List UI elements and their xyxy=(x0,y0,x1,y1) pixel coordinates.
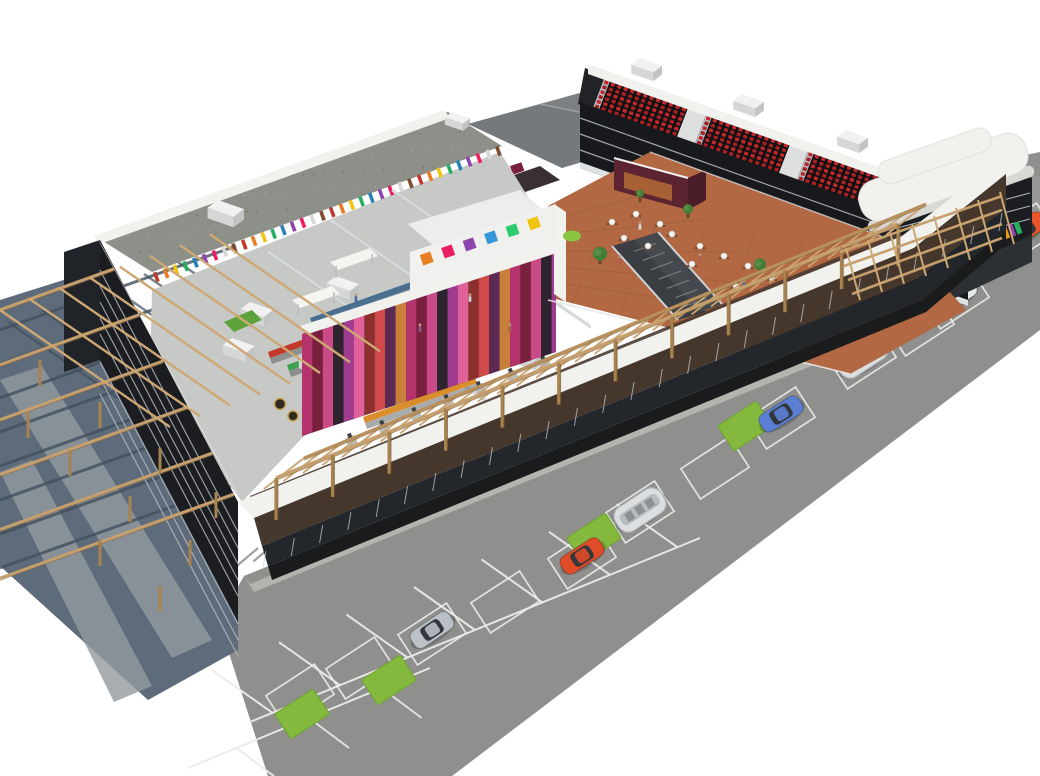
cafe-chair xyxy=(751,267,754,270)
cafe-chair xyxy=(675,235,678,238)
product-stripe xyxy=(358,196,365,207)
gravel-dot xyxy=(198,231,200,233)
display-barrel xyxy=(275,399,286,410)
cafe-table xyxy=(745,263,751,269)
product-stripe xyxy=(378,189,385,200)
product-stripe xyxy=(309,214,316,225)
person-head xyxy=(699,253,702,256)
cafe-chair xyxy=(627,239,630,242)
gravel-dot xyxy=(187,231,189,233)
gravel-dot xyxy=(256,210,258,212)
product-stripe xyxy=(368,192,375,203)
person-head xyxy=(419,323,422,326)
person xyxy=(355,296,358,302)
gravel-dot xyxy=(322,173,324,175)
cafe-table xyxy=(609,219,615,225)
gravel-dot xyxy=(218,229,220,231)
gravel-dot xyxy=(314,190,316,192)
cafe-chair xyxy=(719,257,722,260)
gravel-dot xyxy=(149,251,151,253)
display-barrel xyxy=(288,411,298,421)
mall-render xyxy=(0,0,1040,776)
product-stripe xyxy=(456,160,463,171)
cafe-table xyxy=(633,211,639,217)
gravel-dot xyxy=(433,166,435,168)
product-stripe xyxy=(436,167,443,178)
cafe-table xyxy=(621,235,627,241)
cafe-chair xyxy=(695,265,698,268)
product-stripe xyxy=(270,228,277,239)
cafe-chair xyxy=(687,265,690,268)
gravel-dot xyxy=(391,152,393,154)
gravel-dot xyxy=(383,169,385,171)
product-stripe xyxy=(339,203,346,214)
gravel-dot xyxy=(342,171,344,173)
hvac-unit xyxy=(631,58,662,81)
cafe-chair xyxy=(643,247,646,250)
sw-return-face xyxy=(64,240,100,372)
product-stripe xyxy=(319,210,326,221)
gravel-dot xyxy=(306,207,308,209)
cafe-chair xyxy=(695,247,698,250)
product-stripe xyxy=(241,239,248,250)
gravel-dot xyxy=(266,210,268,212)
gravel-dot xyxy=(411,150,413,152)
hvac-unit xyxy=(733,94,764,117)
cafe-chair xyxy=(615,223,618,226)
gravel-dot xyxy=(302,174,304,176)
gravel-dot xyxy=(362,170,364,172)
person xyxy=(619,258,622,264)
gravel-dot xyxy=(264,193,266,195)
gravel-dot xyxy=(196,214,198,216)
gravel-dot xyxy=(451,148,453,150)
gravel-dot xyxy=(177,232,179,234)
cafe-table xyxy=(697,243,703,249)
product-stripe xyxy=(290,221,297,232)
product-stripe xyxy=(300,218,307,229)
cafe-chair xyxy=(655,225,658,228)
gravel-dot xyxy=(254,194,256,196)
gravel-dot xyxy=(413,167,415,169)
tree-highlight xyxy=(594,249,602,257)
tree-highlight xyxy=(755,260,762,267)
product-stripe xyxy=(397,182,404,193)
gravel-dot xyxy=(147,234,149,236)
gravel-dot xyxy=(169,249,171,251)
gravel-dot xyxy=(246,211,248,213)
person-head xyxy=(355,293,358,296)
gravel-dot xyxy=(292,175,294,177)
gravel-dot xyxy=(179,249,181,251)
gravel-dot xyxy=(127,235,129,237)
person-head xyxy=(469,293,472,296)
gravel-dot xyxy=(419,133,421,135)
gravel-dot xyxy=(354,187,356,189)
gravel-dot xyxy=(374,186,376,188)
gravel-dot xyxy=(461,147,463,149)
gravel-dot xyxy=(312,173,314,175)
cafe-chair xyxy=(727,257,730,260)
tree-highlight xyxy=(684,205,690,211)
product-stripe xyxy=(407,178,414,189)
person xyxy=(509,326,512,332)
cafe-table xyxy=(669,231,675,237)
person xyxy=(469,296,472,302)
person-head xyxy=(619,255,622,258)
gravel-dot xyxy=(371,153,373,155)
gravel-dot xyxy=(274,192,276,194)
gravel-dot xyxy=(403,167,405,169)
gravel-dot xyxy=(481,146,483,148)
gravel-dot xyxy=(439,132,441,134)
cafe-table xyxy=(721,253,727,259)
cafe-chair xyxy=(743,267,746,270)
person xyxy=(639,224,642,230)
cafe-chair xyxy=(663,225,666,228)
gravel-dot xyxy=(361,153,363,155)
gravel-dot xyxy=(334,189,336,191)
person xyxy=(419,326,422,332)
gravel-dot xyxy=(286,208,288,210)
person-head xyxy=(639,221,642,224)
gravel-dot xyxy=(431,149,433,151)
product-stripe xyxy=(280,225,287,236)
render-stage xyxy=(0,0,1040,776)
product-stripe xyxy=(348,200,355,211)
product-stripe xyxy=(427,171,434,182)
cafe-chair xyxy=(619,239,622,242)
product-stripe xyxy=(260,232,267,243)
person-head xyxy=(509,323,512,326)
cafe-table xyxy=(657,221,663,227)
gravel-dot xyxy=(159,250,161,252)
gravel-dot xyxy=(258,227,260,229)
cafe-chair xyxy=(639,215,642,218)
gravel-dot xyxy=(294,191,296,193)
cafe-chair xyxy=(631,215,634,218)
gravel-dot xyxy=(139,251,141,253)
green-ottoman xyxy=(563,231,581,242)
product-stripe xyxy=(417,174,424,185)
cafe-chair xyxy=(651,247,654,250)
gravel-dot xyxy=(189,248,191,250)
cafe-table xyxy=(689,261,695,267)
tree-highlight xyxy=(637,191,641,195)
gravel-dot xyxy=(284,192,286,194)
gravel-dot xyxy=(459,130,461,132)
cafe-chair xyxy=(703,247,706,250)
atrium-cut-wall xyxy=(554,204,566,302)
hvac-unit xyxy=(837,130,868,153)
person xyxy=(699,256,702,262)
gravel-dot xyxy=(244,194,246,196)
product-stripe xyxy=(329,207,336,218)
cafe-chair xyxy=(667,235,670,238)
gravel-dot xyxy=(238,228,240,230)
gravel-dot xyxy=(423,166,425,168)
gravel-dot xyxy=(167,233,169,235)
gravel-dot xyxy=(351,154,353,156)
product-stripe xyxy=(251,236,258,247)
cafe-chair xyxy=(607,223,610,226)
gravel-dot xyxy=(208,230,210,232)
cafe-table xyxy=(645,243,651,249)
product-stripe xyxy=(446,164,453,175)
gravel-dot xyxy=(471,146,473,148)
